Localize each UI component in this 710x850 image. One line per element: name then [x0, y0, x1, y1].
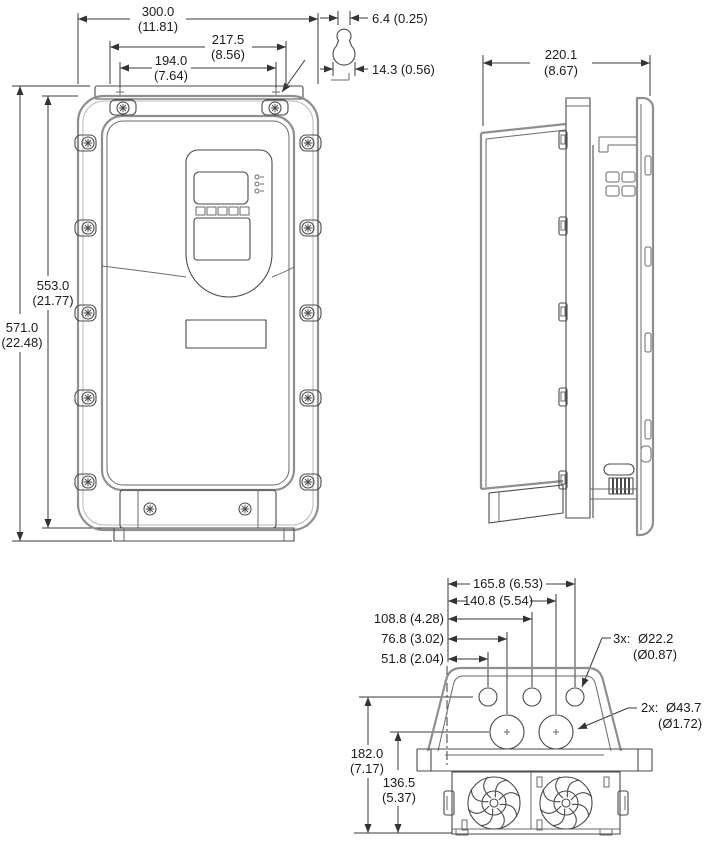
small-hole-count: 3x: [613, 631, 630, 646]
dim-height-flange-in: (21.77) [32, 293, 73, 308]
keyhole-slot-shape [333, 29, 355, 65]
dim-height2-in: (5.37) [382, 790, 416, 805]
bottom-flange-bar [417, 749, 652, 771]
bottom-view: 165.8 (6.53) 140.8 (5.54) 108.8 (4.28) 7… [350, 576, 702, 835]
dim-front-width-in: (11.81) [138, 19, 178, 34]
conduit-holes [479, 688, 584, 749]
bottom-drive-body [417, 668, 652, 835]
flange-screws [75, 135, 321, 490]
fan-left [468, 777, 520, 829]
dim-slot-inner-in: (7.64) [154, 68, 188, 83]
dim-slot-outer-mm: 217.5 [212, 32, 245, 47]
dim-pos4: 140.8 (5.54) [463, 593, 533, 608]
dim-keyhole-width: 6.4 (0.25) [372, 11, 428, 26]
fan-housing [444, 772, 628, 835]
dim-pos2: 76.8 (3.02) [381, 631, 444, 646]
front-view: 300.0 (11.81) 217.5 (8.56) 194.0 (7.64) … [1, 4, 434, 541]
front-drive-body [75, 86, 321, 541]
dim-slot-inner-mm: 194.0 [155, 53, 188, 68]
dim-pos3: 108.8 (4.28) [374, 611, 444, 626]
vent-openings [606, 172, 635, 196]
keypad-module [186, 150, 272, 297]
dim-depth-in: (8.67) [544, 63, 578, 78]
dim-slot-outer-in: (8.56) [211, 47, 245, 62]
dim-pos5: 165.8 (6.53) [473, 576, 543, 591]
front-dimensions: 300.0 (11.81) 217.5 (8.56) 194.0 (7.64) … [1, 4, 318, 541]
gland-plate [428, 668, 621, 751]
dim-height-overall-mm: 571.0 [6, 320, 39, 335]
bottom-conduit-box [114, 490, 294, 541]
side-flange-plate [566, 98, 590, 518]
keyhole-slot-detail: 6.4 (0.25) 14.3 (0.56) [282, 11, 435, 92]
dim-height1-in: (7.17) [350, 761, 384, 776]
bottom-bracket [590, 464, 637, 499]
keypad-buttons [194, 218, 250, 260]
fan-right [540, 777, 592, 829]
large-hole-dia: Ø43.7 [666, 700, 701, 715]
dim-height-overall-in: (22.48) [1, 335, 42, 350]
flange-outline [78, 96, 318, 530]
status-led-icons [255, 175, 264, 193]
dim-depth-mm: 220.1 [545, 47, 578, 62]
technical-drawing-page: 300.0 (11.81) 217.5 (8.56) 194.0 (7.64) … [0, 0, 710, 850]
small-hole-dia: Ø22.2 [638, 631, 673, 646]
small-hole-dia-in: (Ø0.87) [633, 647, 677, 662]
dim-height1-mm: 182.0 [351, 746, 384, 761]
drive-dimension-drawing: 300.0 (11.81) 217.5 (8.56) 194.0 (7.64) … [0, 0, 710, 850]
dim-front-width-mm: 300.0 [142, 4, 175, 19]
side-drive-body [481, 98, 653, 535]
dim-keyhole-dia: 14.3 (0.56) [372, 62, 435, 77]
dim-height-flange-mm: 553.0 [37, 278, 70, 293]
large-hole-count: 2x: [641, 700, 658, 715]
side-view: 220.1 (8.67) [481, 47, 653, 535]
nameplate-label [186, 320, 266, 348]
dim-pos1: 51.8 (2.04) [381, 651, 444, 666]
keypad-display [194, 172, 248, 204]
side-front-cover [481, 124, 566, 489]
back-panel-slots [641, 156, 651, 462]
large-hole-dia-in: (Ø1.72) [658, 716, 702, 731]
bottom-dimensions: 165.8 (6.53) 140.8 (5.54) 108.8 (4.28) 7… [350, 576, 702, 833]
dim-height2-mm: 136.5 [383, 775, 416, 790]
